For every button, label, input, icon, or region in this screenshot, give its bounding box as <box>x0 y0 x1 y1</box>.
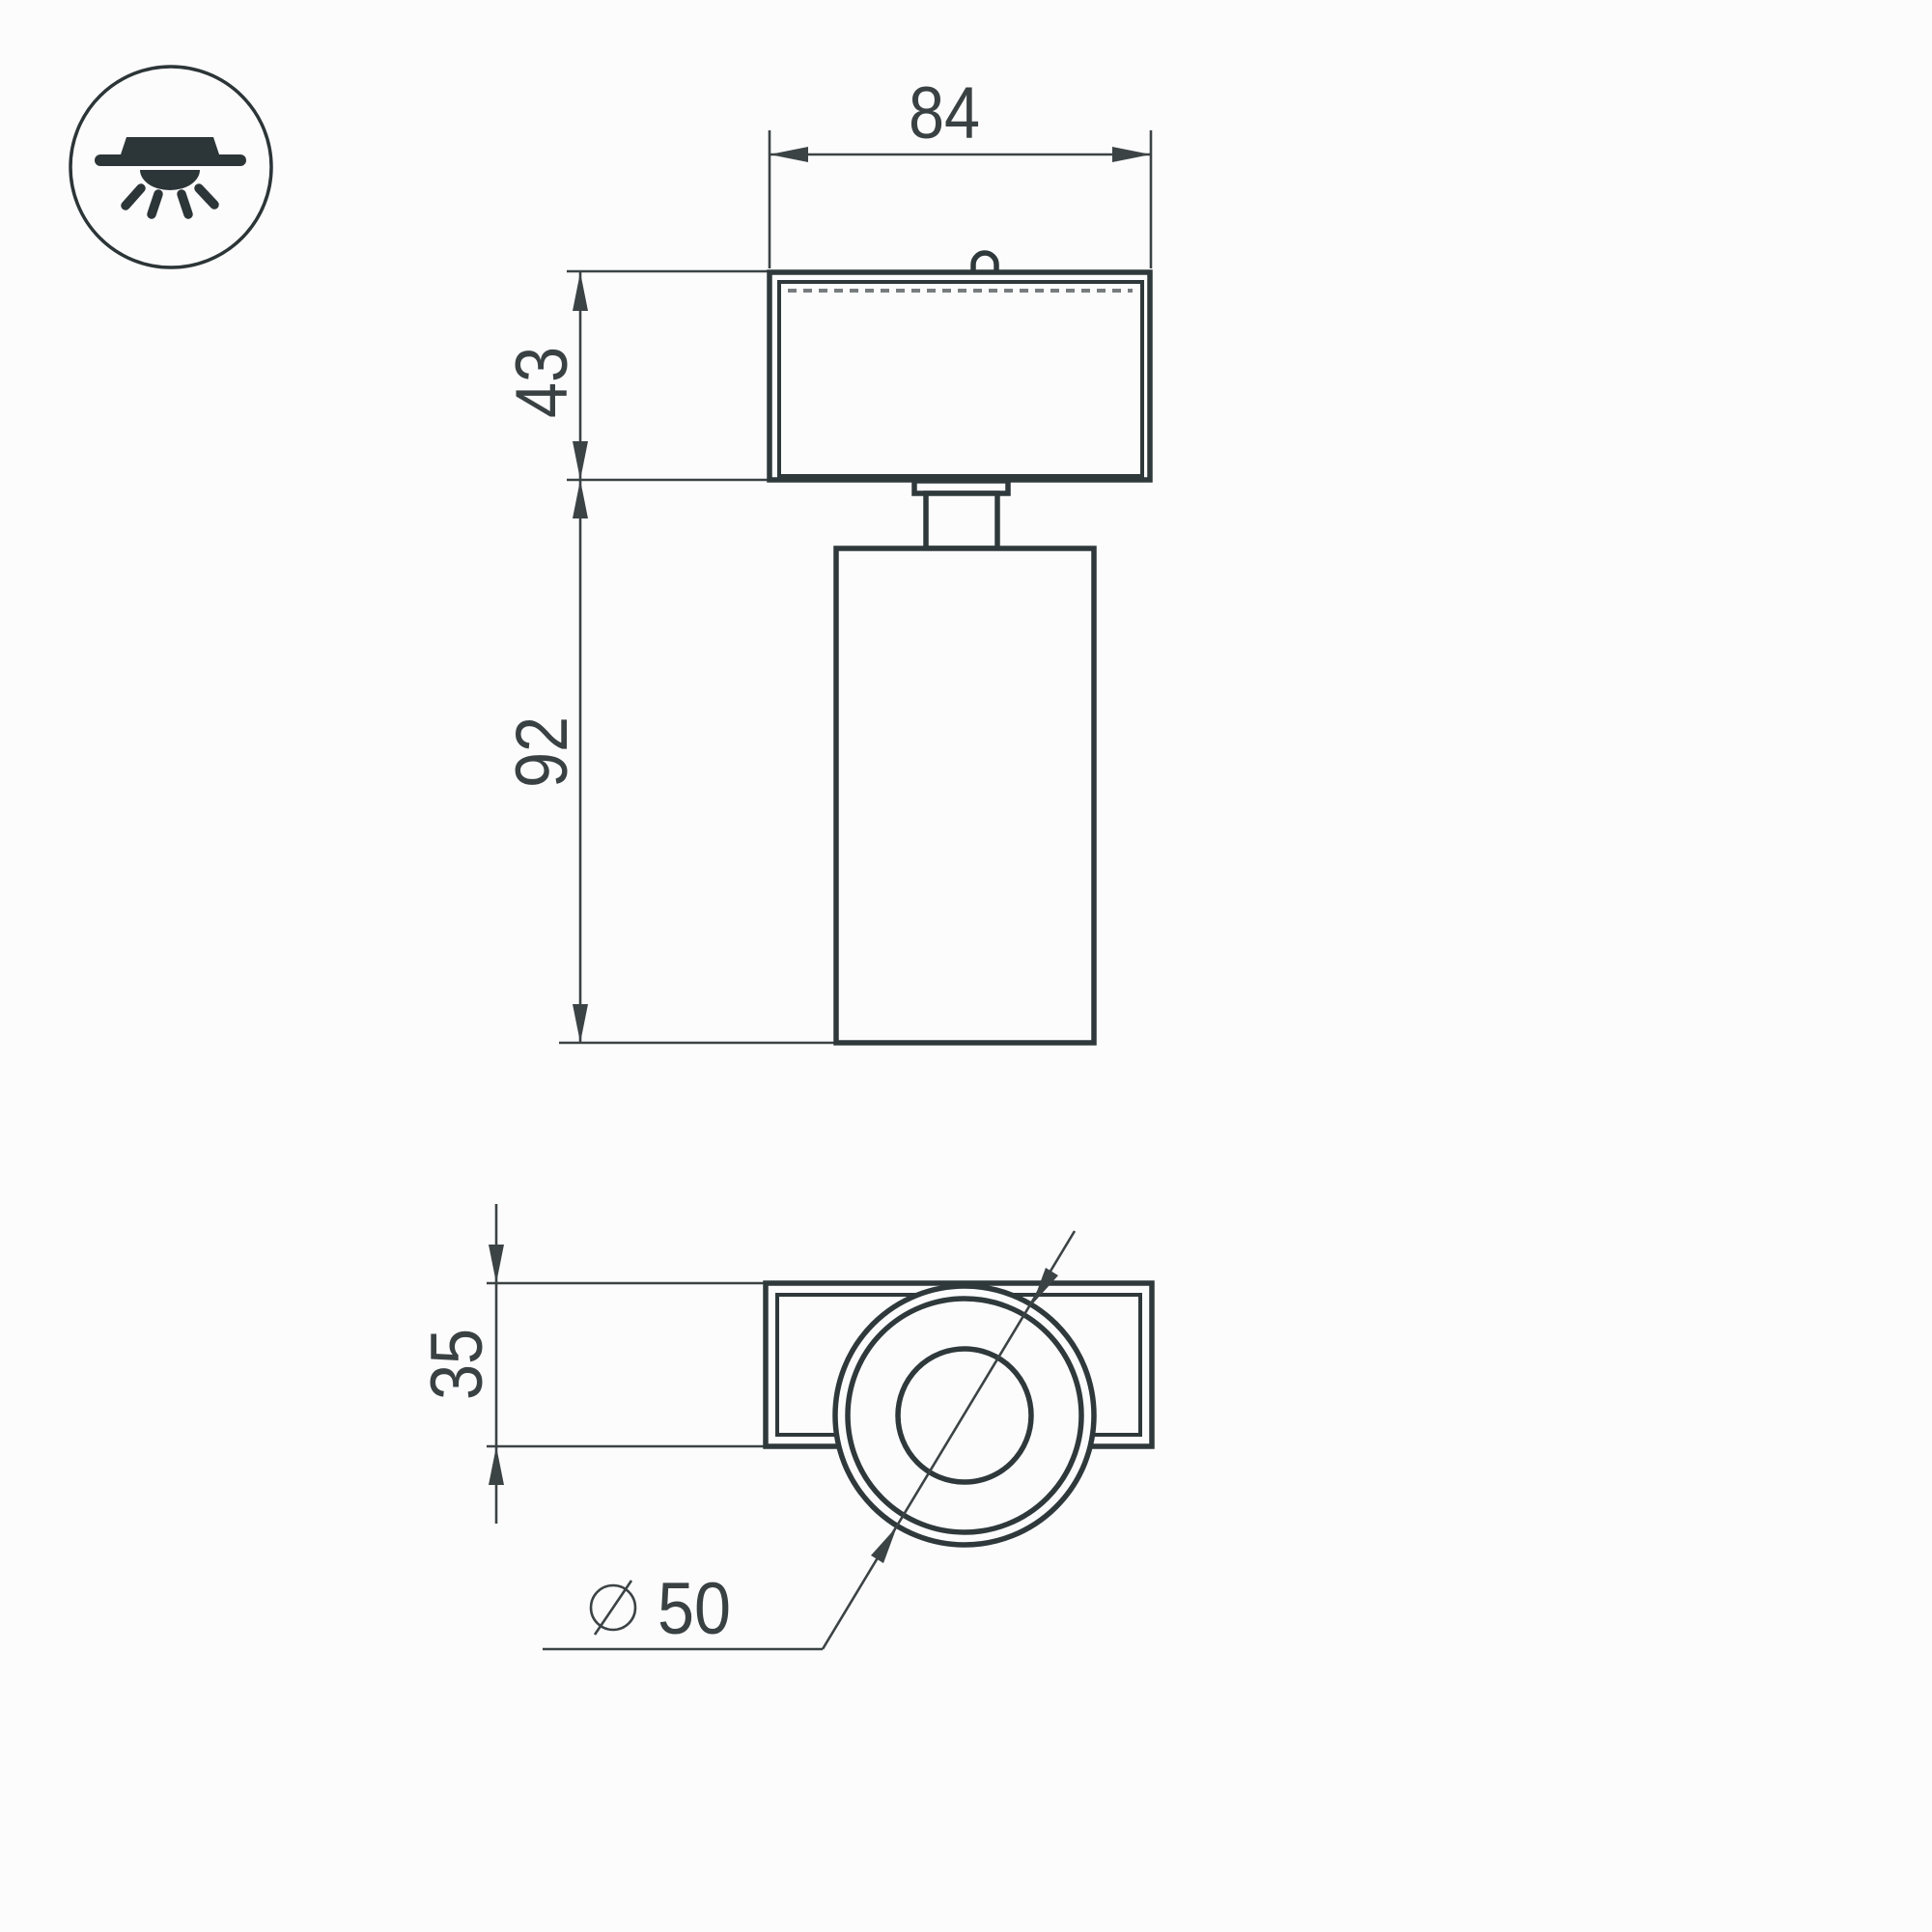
arrowhead-up <box>573 480 588 518</box>
arrowhead-lower <box>871 1526 897 1563</box>
light-dome-shape <box>140 170 200 190</box>
arrowhead-up <box>573 272 588 311</box>
top-screw-loop <box>973 253 996 272</box>
light-ray <box>126 188 141 206</box>
cylinder-lamp-body <box>836 548 1094 1043</box>
dimension-body-height: 92 <box>501 480 836 1043</box>
dimension-label-profile-depth: 35 <box>416 1329 498 1400</box>
dimension-label-body-height: 92 <box>501 716 583 788</box>
light-ray <box>182 194 188 214</box>
surface-ceiling-light-icon <box>95 137 246 214</box>
mount-type-icon-badge <box>70 67 271 267</box>
ceiling-line-shape <box>95 154 246 166</box>
dimension-label-width: 84 <box>909 72 980 154</box>
light-ray <box>199 188 214 205</box>
front-view: 84 43 92 <box>501 72 1151 1043</box>
arrowhead-up <box>489 1446 504 1485</box>
track-adapter-outline <box>770 272 1150 480</box>
arrowhead-left <box>770 147 808 162</box>
fixture-bottom-outline <box>766 1283 1152 1545</box>
luminaire-dimension-drawing: 84 43 92 <box>0 0 1932 1932</box>
bottom-view: 35 50 <box>416 1204 1152 1650</box>
icon-badge-circle <box>70 67 271 267</box>
dimension-adapter-height: 43 <box>501 271 770 480</box>
arrowhead-down <box>573 441 588 480</box>
arrowhead-down <box>573 1004 588 1043</box>
dimension-profile-depth: 35 <box>416 1204 766 1524</box>
diameter-symbol <box>591 1581 635 1635</box>
technical-drawing-page: 84 43 92 <box>0 0 1932 1932</box>
dimension-label-adapter-height: 43 <box>501 347 583 418</box>
dimension-width: 84 <box>770 72 1151 268</box>
swivel-neck <box>926 493 997 548</box>
dimension-label-diameter: 50 <box>658 1568 731 1650</box>
arrowhead-right <box>1112 147 1151 162</box>
light-ray <box>152 194 158 214</box>
fixture-front-outline <box>770 253 1150 1043</box>
arrowhead-down <box>489 1245 504 1283</box>
